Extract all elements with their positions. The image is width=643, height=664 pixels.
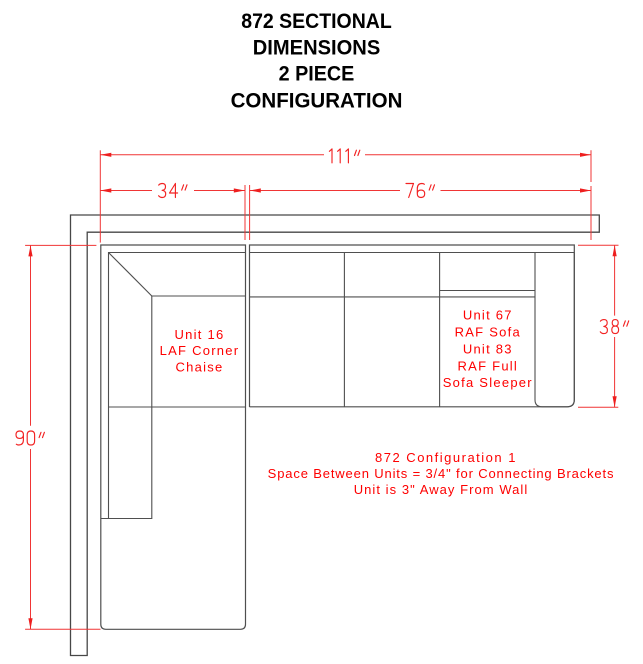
svg-text:RAF Full: RAF Full xyxy=(458,358,519,373)
svg-text:Unit 16: Unit 16 xyxy=(175,327,225,342)
svg-text:CONFIGURATION: CONFIGURATION xyxy=(231,90,403,113)
svg-text:Chaise: Chaise xyxy=(176,360,224,375)
svg-text:DIMENSIONS: DIMENSIONS xyxy=(253,37,381,60)
svg-text:Space Between Units = 3/4" for: Space Between Units = 3/4" for Connectin… xyxy=(268,466,615,481)
svg-text:Sofa Sleeper: Sofa Sleeper xyxy=(443,375,533,390)
svg-text:872 Configuration 1: 872 Configuration 1 xyxy=(375,450,517,465)
svg-text:LAF Corner: LAF Corner xyxy=(160,343,240,358)
svg-text:Unit 83: Unit 83 xyxy=(463,341,513,356)
svg-text:872 SECTIONAL: 872 SECTIONAL xyxy=(241,10,392,33)
svg-text:Unit 67: Unit 67 xyxy=(463,308,513,323)
svg-text:2 PIECE: 2 PIECE xyxy=(279,63,355,86)
svg-text:RAF Sofa: RAF Sofa xyxy=(455,325,521,340)
svg-text:Unit is 3" Away From Wall: Unit is 3" Away From Wall xyxy=(354,482,529,497)
